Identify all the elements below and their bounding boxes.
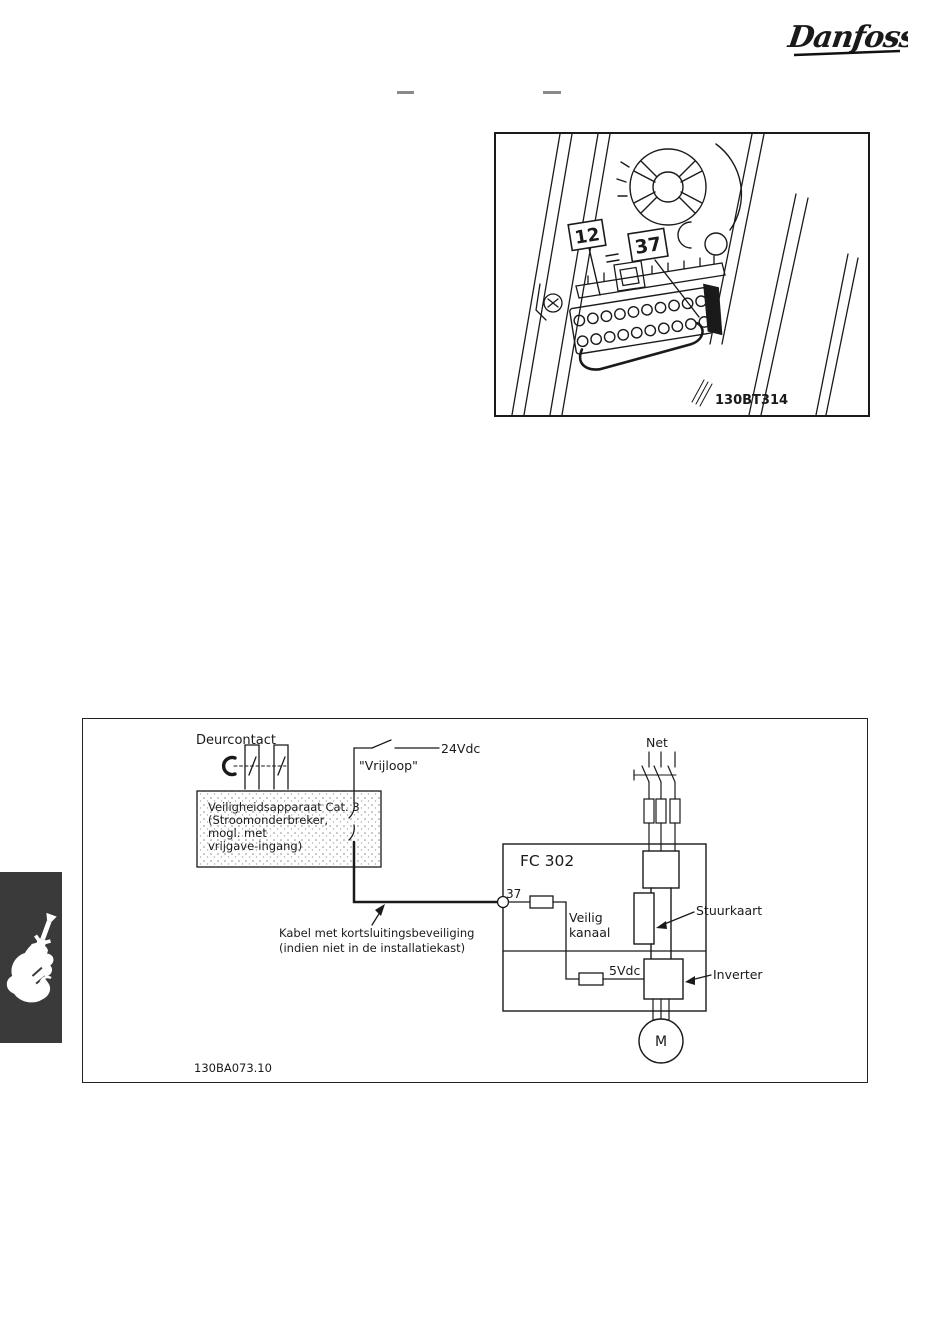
control-card-annotation: Stuurkaart (656, 903, 762, 929)
motor-circuit: M (639, 999, 683, 1063)
danfoss-logo: Danfoss (778, 12, 908, 64)
safety-box-text-2: (Stroomonderbreker, (208, 813, 328, 827)
door-hinge-symbol (224, 758, 235, 775)
terminal-37-node (498, 897, 509, 908)
cable-annotation: Kabel met kortsluitingsbeveiliging (indi… (279, 904, 474, 955)
hatch-marks (692, 380, 712, 406)
voltage-24v-label: 24Vdc (441, 741, 480, 756)
hand-screwdriver-icon (0, 872, 62, 1043)
arrow-up-icon (375, 904, 385, 916)
figure-ref-130bt314: 130BT314 (715, 393, 788, 408)
underline-mark-2 (543, 91, 561, 94)
mains-label: Net (646, 735, 668, 750)
danfoss-logo-icon: Danfoss (778, 12, 908, 64)
coast-label: "Vrijloop" (359, 758, 418, 773)
cable-note-2: (indien niet in de installatiekast) (279, 941, 465, 955)
safe-channel-label-2: kanaal (569, 925, 610, 940)
connector-wedge (700, 281, 726, 337)
chapter-tab-installation[interactable] (0, 872, 62, 1043)
manual-page: Danfoss (0, 0, 950, 1344)
danfoss-logo-text: Danfoss (785, 20, 908, 55)
cable-note-1: Kabel met kortsluitingsbeveiliging (279, 926, 474, 940)
door-contact-symbols (224, 745, 288, 789)
control-panel-wheel (606, 144, 741, 262)
terminal-location-figure: 12 37 (494, 132, 870, 417)
rectifier-block (643, 851, 679, 888)
safe-channel-label-1: Veilig (569, 910, 603, 925)
callout-12-label: 12 (573, 224, 601, 249)
inverter-annotation: Inverter (685, 967, 763, 985)
voltage-5v-label: 5Vdc (609, 963, 640, 978)
fuse-2 (656, 799, 666, 823)
control-card-block (634, 893, 654, 944)
door-contact-label: Deurcontact (196, 733, 276, 748)
fuse-3 (670, 799, 680, 823)
wiring-diagram-figure: Deurcontact Veiligheidsapparaat Cat. 3 (… (82, 718, 868, 1083)
safety-box-text-3: mogl. met (208, 826, 267, 840)
inverter-block (644, 959, 683, 999)
drive-name-label: FC 302 (520, 852, 574, 870)
callout-37-label: 37 (633, 233, 663, 259)
mounting-screw (536, 284, 562, 320)
inverter-label: Inverter (713, 967, 763, 982)
safety-box-text-1: Veiligheidsapparaat Cat. 3 (208, 800, 360, 814)
fuse-1 (644, 799, 654, 823)
figure-ref-130ba073: 130BA073.10 (194, 1061, 272, 1075)
mains-circuit (634, 752, 680, 851)
power-section (634, 851, 683, 999)
safety-box-text-4: vrijgave-ingang) (208, 839, 302, 853)
arrow-left-icon (685, 976, 695, 985)
arrow-left-icon (656, 921, 667, 929)
control-terminal-block (569, 281, 729, 372)
wheel-spokes (634, 161, 702, 213)
underline-mark-1 (397, 91, 414, 94)
motor-label: M (655, 1034, 667, 1050)
pin-header-strip (576, 256, 725, 298)
control-card-label: Stuurkaart (696, 903, 762, 918)
drive-housing-lines (512, 134, 858, 415)
